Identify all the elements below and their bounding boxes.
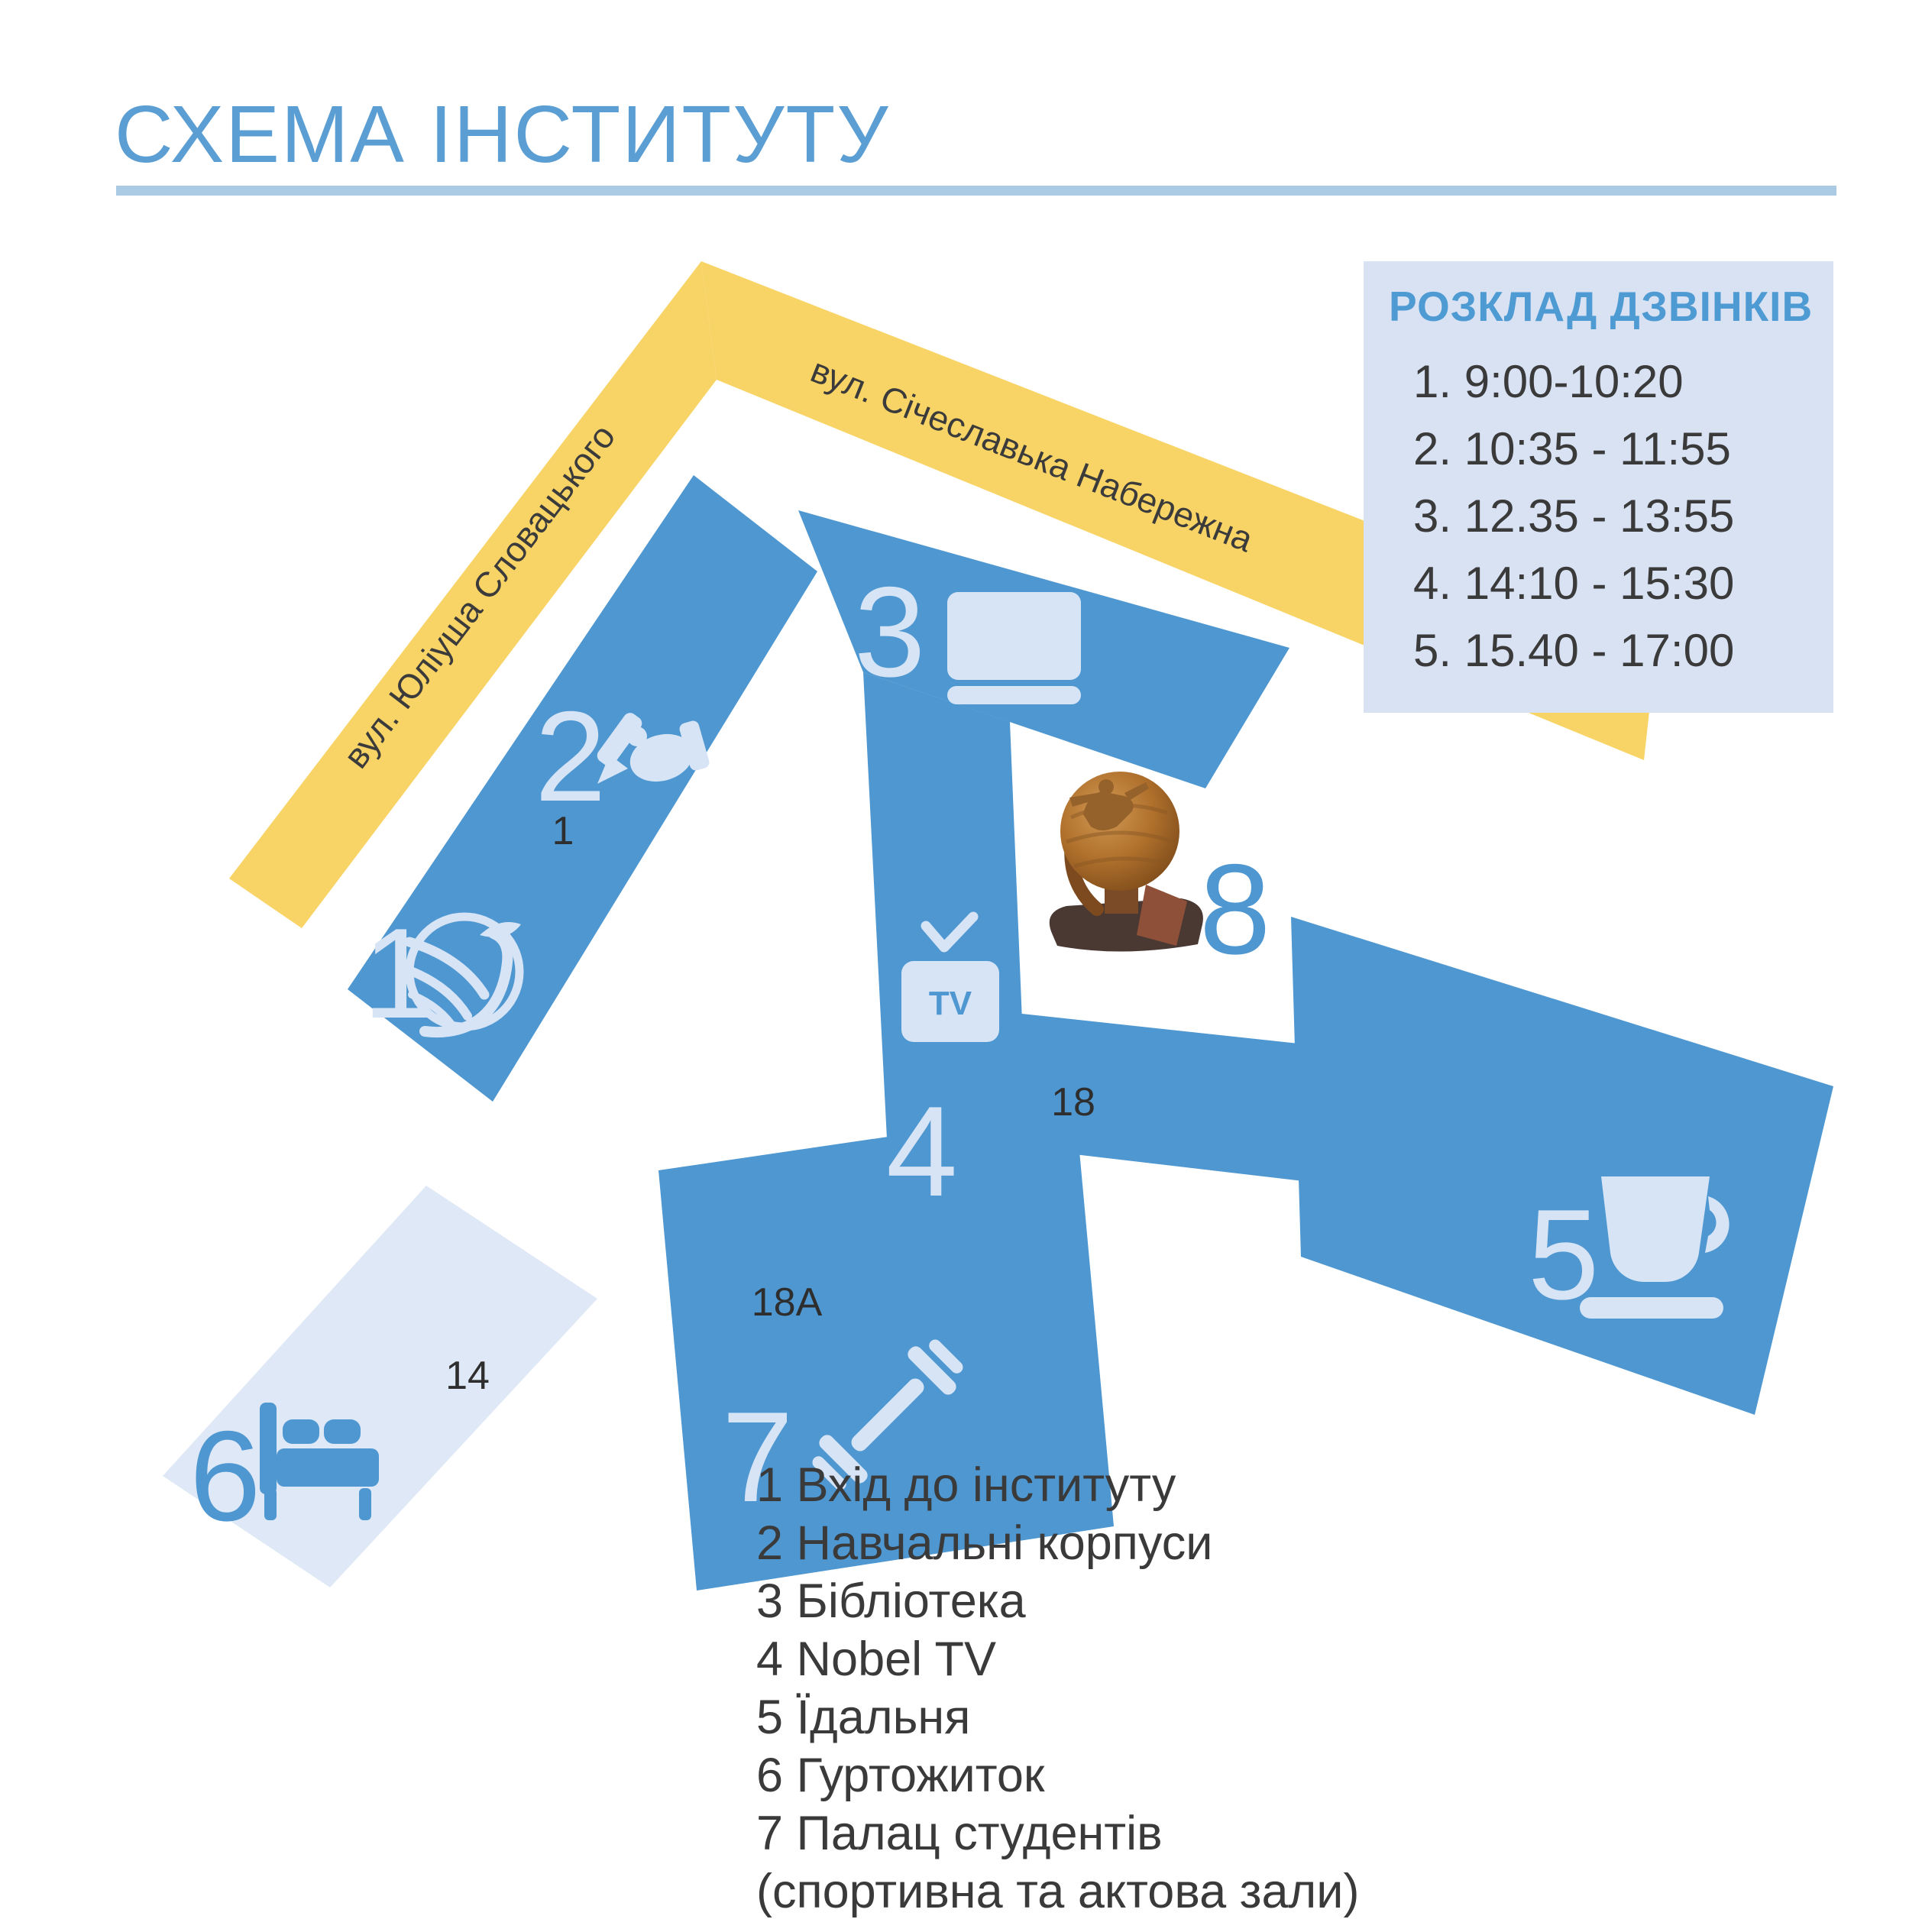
schedule-item: 2. 10:35 - 11:55 [1413, 423, 1731, 474]
schedule-item: 1. 9:00-10:20 [1413, 356, 1684, 407]
book-icon [947, 592, 1081, 704]
canteen-group: 5 [1528, 1176, 1729, 1326]
legend-item: 4 Nobel TV [756, 1633, 996, 1686]
tv-number: 4 [886, 1079, 957, 1223]
legend-item: 1 Вхід до інституту [756, 1458, 1176, 1512]
dormitory-address-label: 14 [445, 1354, 490, 1398]
campus-map: вул. Юліуша Словацького вул. Січеславька… [0, 0, 1922, 1932]
academic-number: 2 [535, 684, 606, 828]
campus-map-page: вул. Юліуша Словацького вул. Січеславька… [0, 0, 1922, 1932]
page-title: СХЕМА ІНСТИТУТУ [115, 89, 890, 180]
library-number: 3 [854, 560, 925, 704]
canteen-arm-address-label: 18 [1051, 1080, 1095, 1125]
schedule-item: 4. 14:10 - 15:30 [1413, 558, 1734, 609]
legend-item: 5 Їдальня [756, 1691, 970, 1744]
building-canteen-block [1291, 917, 1833, 1415]
legend-item: 3 Бібліотека [756, 1574, 1027, 1628]
schedule-item: 5. 15.40 - 17:00 [1413, 625, 1734, 676]
palace-address-label: 18А [752, 1280, 823, 1325]
globe-monument [1050, 772, 1203, 952]
schedule-item: 3. 12.35 - 13:55 [1413, 490, 1734, 542]
legend-item: 7 Палац студентів [756, 1807, 1163, 1860]
tv-screen-label: TV [929, 985, 972, 1022]
legend-item: (спортивна та актова зали) [756, 1865, 1359, 1918]
bell-schedule-title: РОЗКЛАД ДЗВІНКІВ [1389, 283, 1813, 330]
legend: 1 Вхід до інституту 2 Навчальні корпуси … [756, 1458, 1359, 1918]
academic-address-label: 1 [552, 809, 574, 853]
bell-schedule-panel: РОЗКЛАД ДЗВІНКІВ 1. 9:00-10:20 2. 10:35 … [1364, 261, 1833, 713]
monument-number: 8 [1199, 837, 1270, 981]
legend-item: 6 Гуртожиток [756, 1749, 1045, 1802]
title-underline [116, 186, 1836, 196]
dormitory-number: 6 [189, 1404, 260, 1548]
legend-item: 2 Навчальні корпуси [756, 1516, 1212, 1570]
